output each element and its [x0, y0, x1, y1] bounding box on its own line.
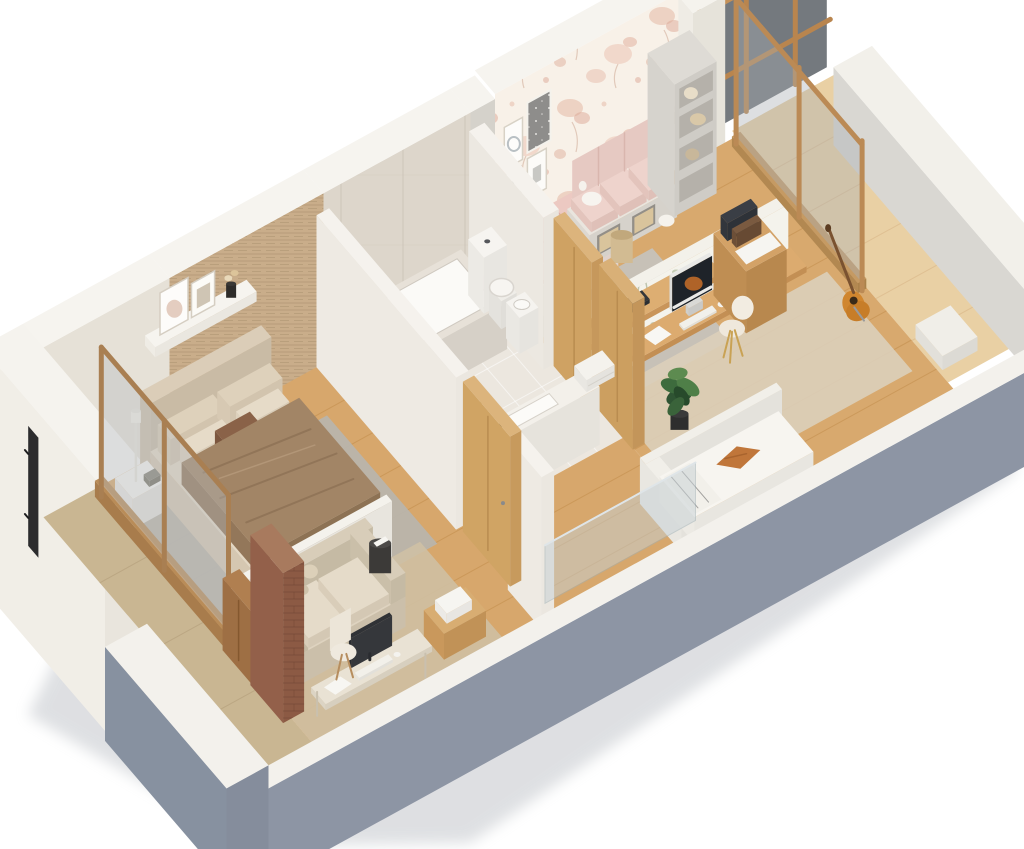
bookshelf-item-1: [684, 87, 698, 99]
scene-root: [0, 0, 1024, 849]
bookshelf-item-3: [685, 148, 699, 160]
radiator: [28, 426, 38, 558]
shelf-flowers-1: [224, 275, 232, 281]
toilet-bowl: [490, 278, 514, 296]
master-bedroom-door-front-face: [510, 431, 521, 587]
sofa-pillow-2: [302, 564, 318, 578]
shelf-art-large-motif: [166, 300, 182, 318]
swan-plush-head: [579, 181, 587, 191]
woven-basket-top: [611, 230, 633, 240]
guitar-headstock: [825, 224, 831, 232]
floorplan-stage: [0, 0, 1024, 849]
shelf-vase-top: [226, 282, 236, 287]
bidet-basin: [514, 300, 530, 310]
imac-screen-glow: [685, 277, 703, 291]
master-door-handle: [501, 501, 505, 505]
office-chair-back: [732, 296, 754, 320]
brick-pillar-front-face-pattern: [283, 562, 304, 724]
guitar-soundhole: [850, 297, 858, 305]
toilet-flush-button: [484, 239, 490, 243]
imac-display-west-face: [670, 275, 673, 312]
bedroom-mouse: [394, 652, 401, 657]
bedroom-chair-seat: [331, 643, 357, 661]
bookshelf-item-2: [690, 113, 706, 125]
swan-plush-body: [582, 192, 602, 206]
apartment-3d-floorplan: [0, 0, 1024, 849]
shelf-flowers-2: [231, 270, 239, 276]
bathroom-door-2-front-face: [633, 297, 645, 450]
floor-plush-toy: [659, 215, 675, 227]
